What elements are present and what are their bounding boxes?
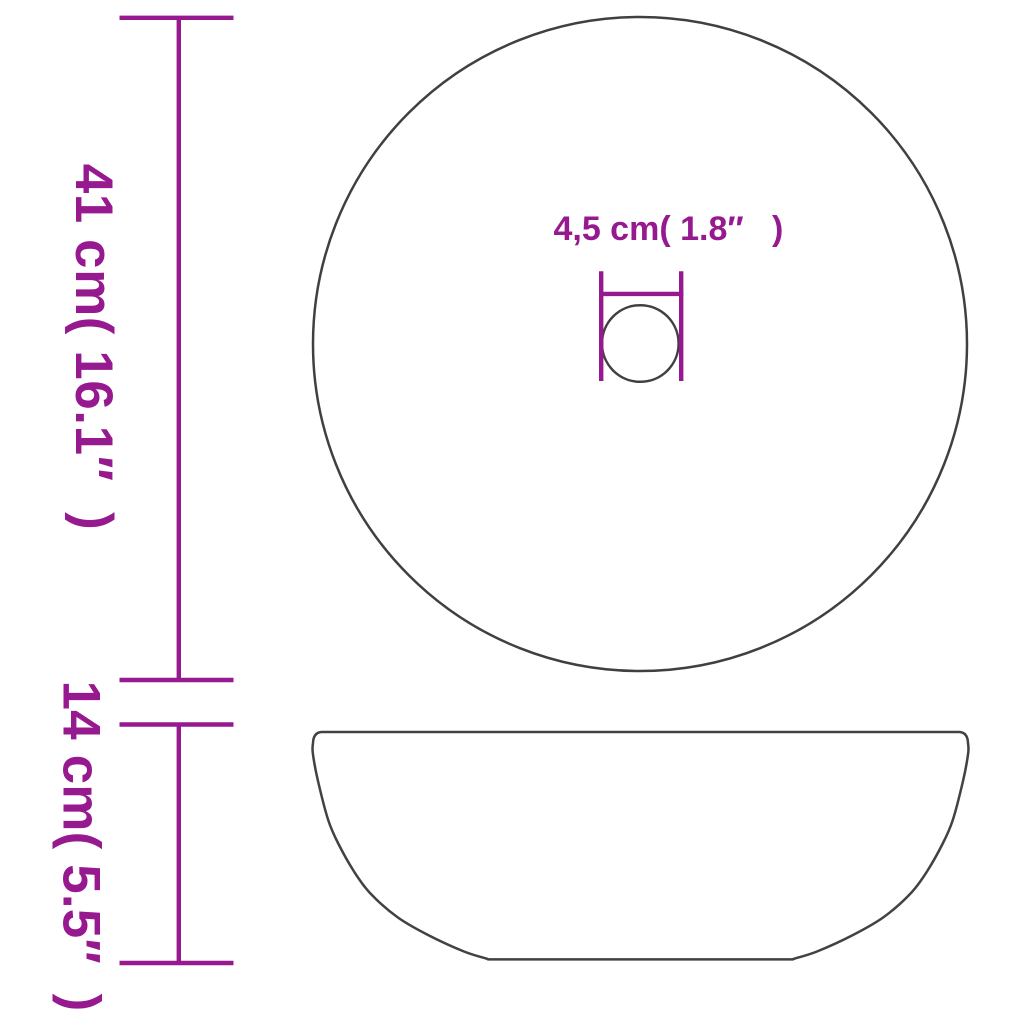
svg-text:4,5 cm( 1.8″ ): 4,5 cm( 1.8″ ) <box>553 210 783 248</box>
svg-text:41 cm( 16.1″ ): 41 cm( 16.1″ ) <box>64 164 123 531</box>
svg-text:14 cm( 5.5″ ): 14 cm( 5.5″ ) <box>52 681 111 1012</box>
